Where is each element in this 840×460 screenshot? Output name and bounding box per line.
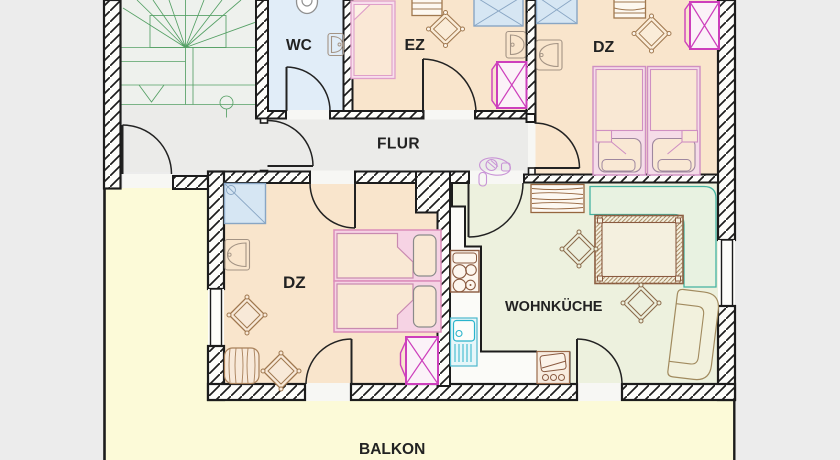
svg-text:DZ: DZ	[593, 39, 615, 56]
svg-text:BALKON: BALKON	[359, 441, 425, 458]
svg-text:DZ: DZ	[283, 273, 306, 292]
svg-text:WOHNKÜCHE: WOHNKÜCHE	[505, 298, 603, 315]
svg-text:WC: WC	[286, 37, 312, 54]
svg-text:EZ: EZ	[405, 37, 426, 54]
svg-text:FLUR: FLUR	[377, 136, 420, 153]
